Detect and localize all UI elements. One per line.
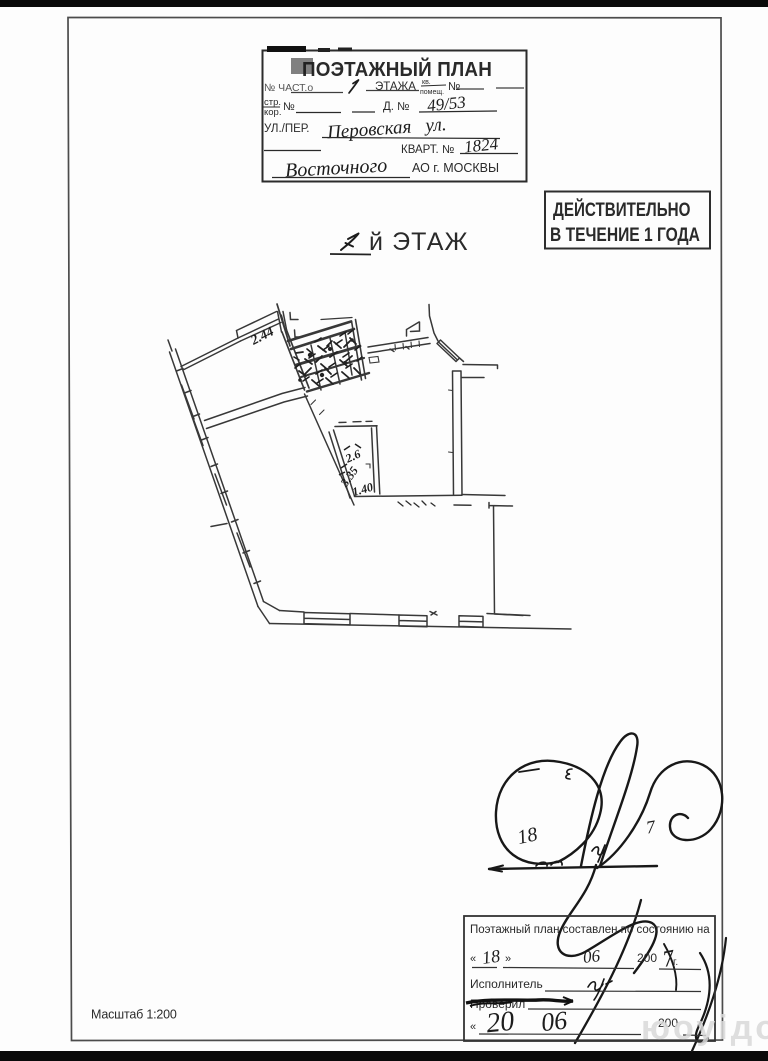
svg-text:кв.: кв. bbox=[422, 79, 431, 86]
svg-text:ЭТАЖА: ЭТАЖА bbox=[375, 81, 416, 93]
svg-text:й ЭТАЖ: й ЭТАЖ bbox=[369, 228, 469, 256]
svg-text:КВАРТ. №: КВАРТ. № bbox=[401, 144, 454, 156]
svg-text:Д. №: Д. № bbox=[383, 101, 410, 113]
svg-text:Поэтажный план составлен по со: Поэтажный план составлен по состоянию на bbox=[470, 924, 710, 936]
svg-text:06: 06 bbox=[582, 946, 601, 967]
svg-text:АО г. МОСКВЫ: АО г. МОСКВЫ bbox=[412, 161, 499, 175]
svg-text:№: № bbox=[448, 81, 460, 93]
svg-text:200: 200 bbox=[637, 951, 657, 965]
svg-text:ДЕЙСТВИТЕЛЬНО: ДЕЙСТВИТЕЛЬНО bbox=[553, 197, 690, 220]
svg-text:«: « bbox=[470, 1021, 476, 1033]
svg-text:В ТЕЧЕНИЕ 1 ГОДА: В ТЕЧЕНИЕ 1 ГОДА bbox=[550, 223, 700, 245]
svg-text:1824: 1824 bbox=[463, 134, 499, 157]
svg-text:49/53: 49/53 bbox=[426, 92, 467, 115]
svg-text:УЛ./ПЕР.: УЛ./ПЕР. bbox=[264, 123, 310, 135]
svg-text:Масштаб 1:200: Масштаб 1:200 bbox=[91, 1008, 177, 1022]
svg-text:»: » bbox=[505, 953, 511, 965]
svg-text:Исполнитель: Исполнитель bbox=[470, 977, 543, 991]
svg-text:юоуідо: юоуідо bbox=[641, 1009, 768, 1047]
svg-text:кор.: кор. bbox=[264, 107, 281, 118]
svg-text:18: 18 bbox=[481, 946, 502, 968]
svg-text:06: 06 bbox=[540, 1006, 569, 1038]
svg-text:«: « bbox=[470, 953, 476, 965]
svg-text:г.: г. bbox=[673, 957, 678, 968]
svg-text:№: № bbox=[283, 101, 295, 113]
svg-text:ПОЭТАЖНЫЙ ПЛАН: ПОЭТАЖНЫЙ ПЛАН bbox=[302, 56, 492, 81]
